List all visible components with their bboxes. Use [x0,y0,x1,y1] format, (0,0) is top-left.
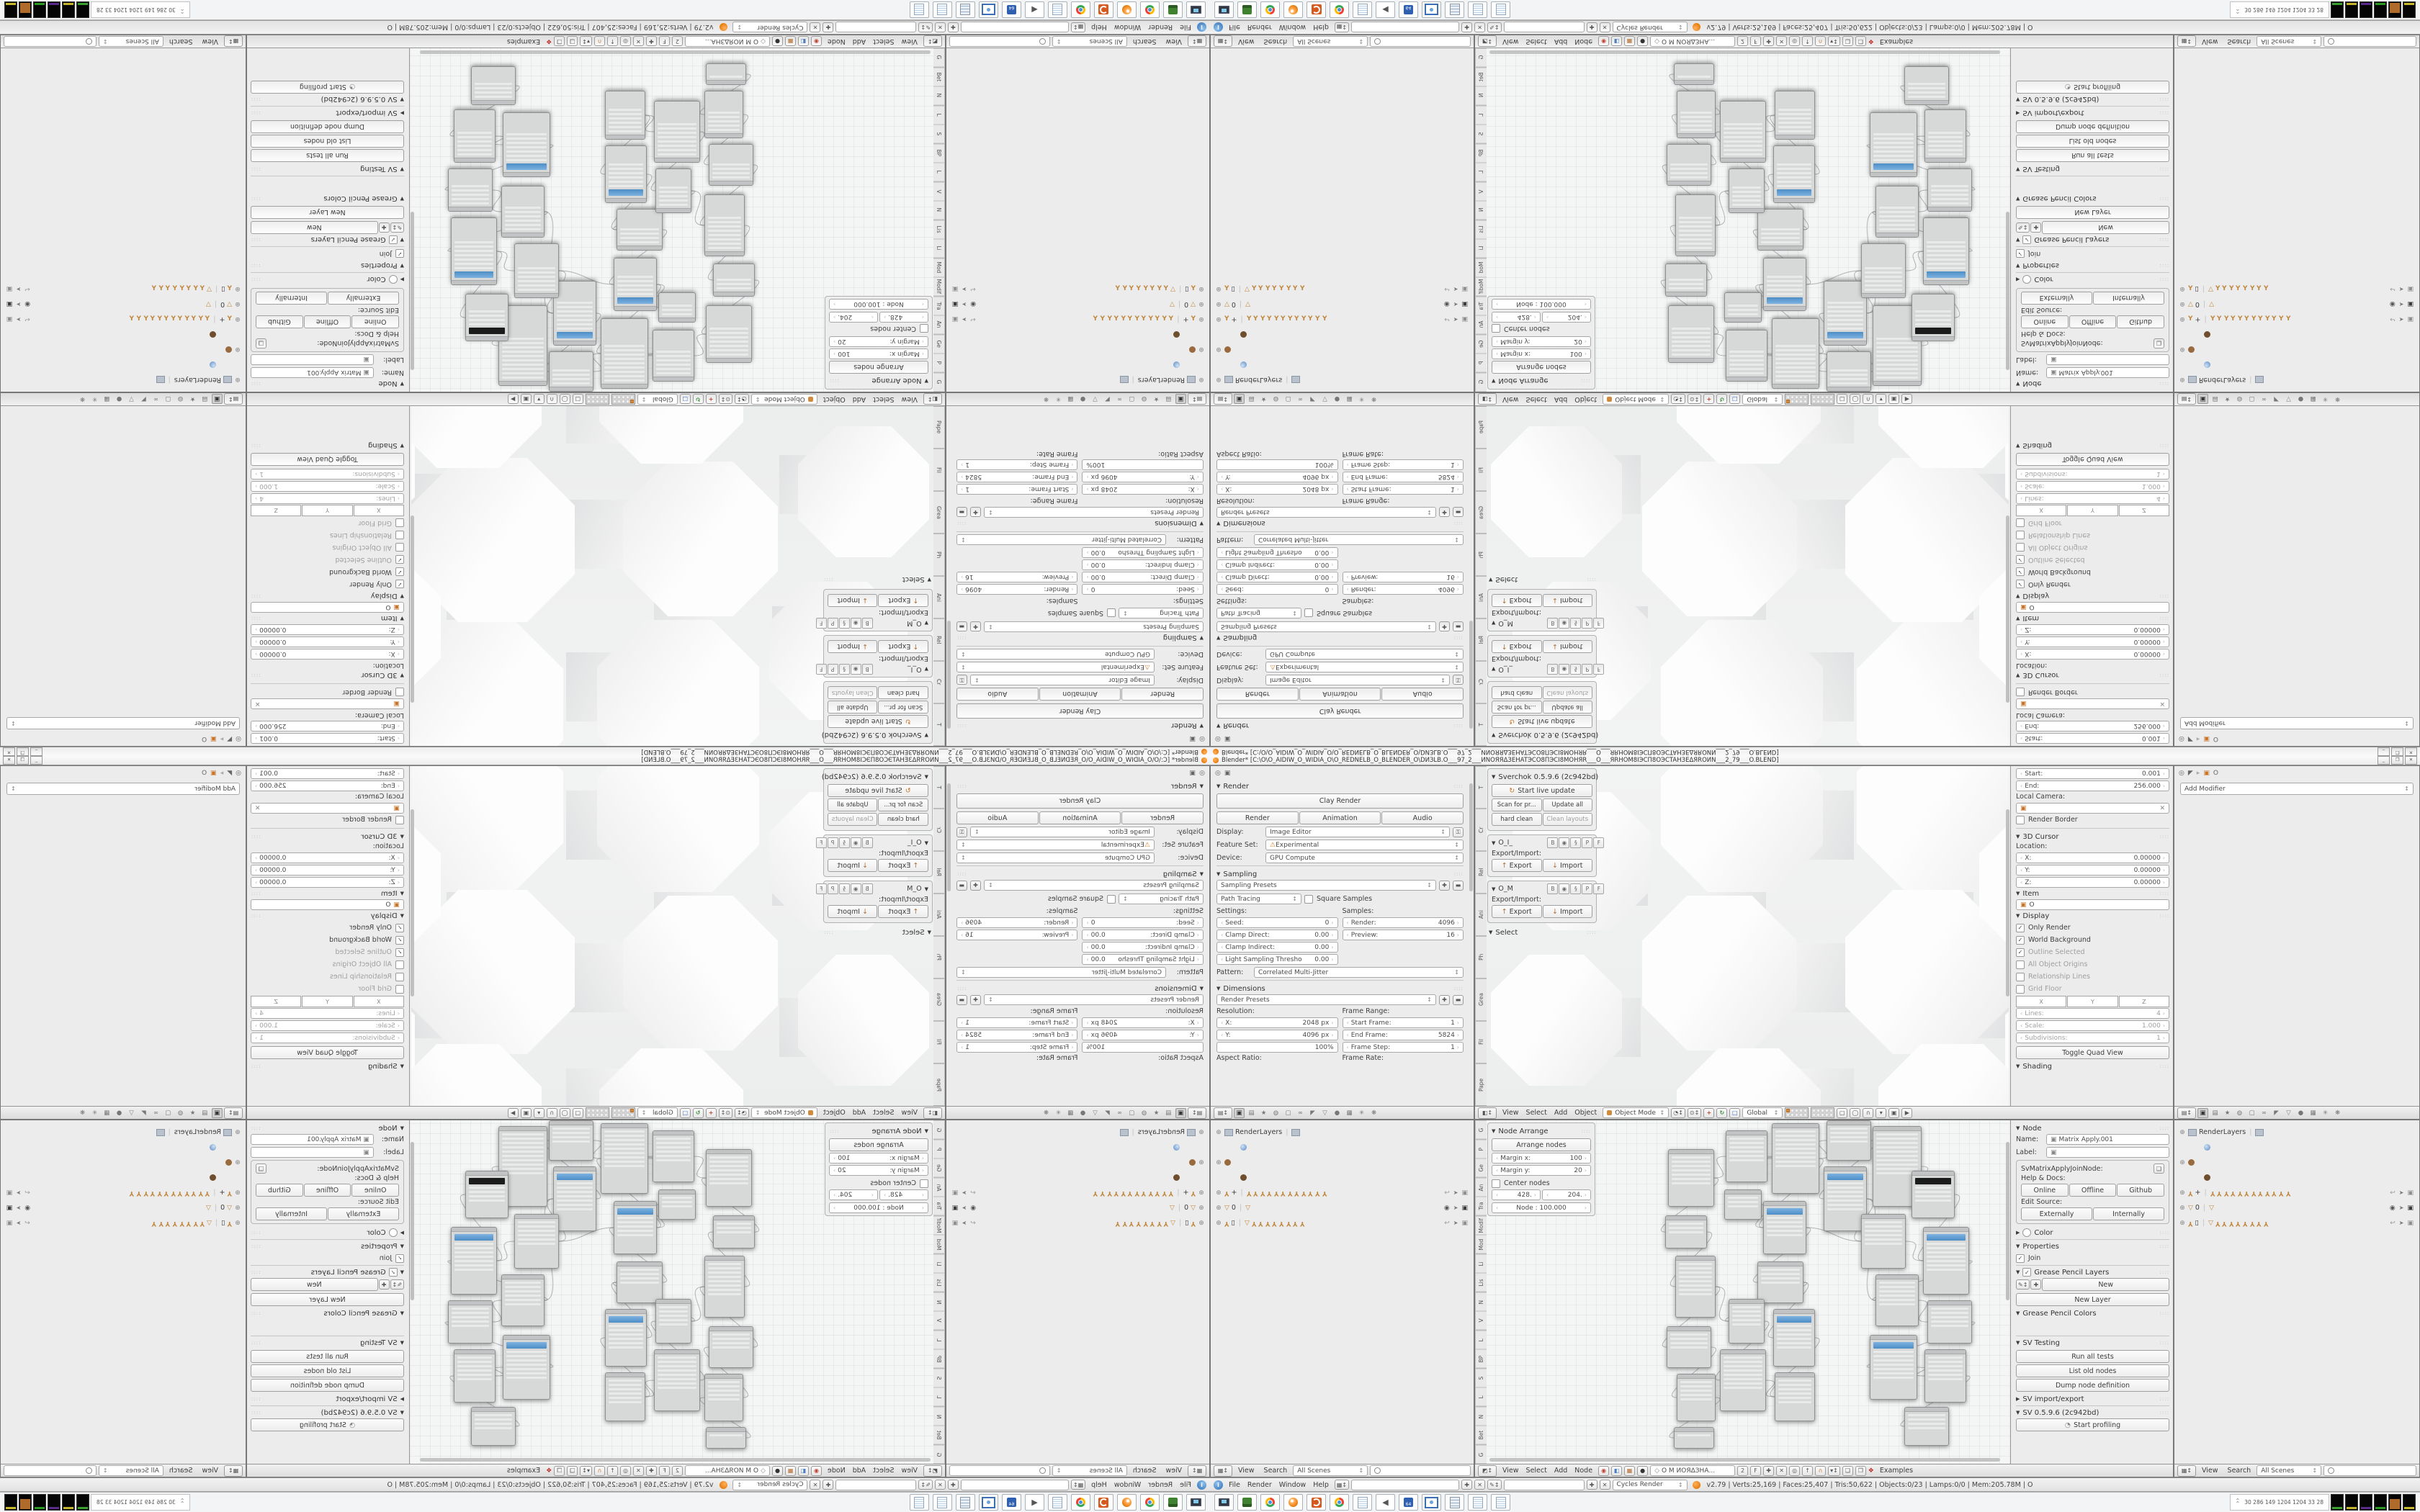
proportional-edit-button[interactable]: ◯ [1850,395,1860,405]
feature-set-select[interactable]: ⚠ Experimental [956,662,1155,672]
graph-node[interactable] [601,1123,648,1194]
seed-field[interactable]: Seed:0 [1083,917,1204,928]
menu-select[interactable]: Select [1523,37,1551,45]
panel-header-sv-testing[interactable]: ▼SV Testing:::: [251,163,404,175]
menu-file[interactable]: File [1176,24,1195,32]
tray-graph-tile[interactable] [2374,1,2387,18]
modifiers-tab[interactable]: ◤ [1307,1108,1318,1118]
parent-tree-icon[interactable]: ↑ [607,1466,618,1476]
armature-box-row[interactable]: ⊕Y▯|▽YYYYYYYY↩➤▣ [2179,282,2416,297]
material-tab[interactable]: ● [1077,395,1088,405]
graph-node[interactable] [658,292,696,323]
info-editor-icon[interactable]: i [1214,1480,1223,1490]
start-frame-field[interactable]: Start Frame:1 [1343,1017,1464,1028]
scene-icon[interactable]: ✎↕ [918,22,932,32]
editor-type-button[interactable]: ◧↕ [1478,1107,1497,1119]
render-samples-field[interactable]: Render:4096 [1343,917,1464,928]
manipulator-rotate-icon[interactable]: ↻ [1716,1108,1727,1118]
armature-plus-row[interactable]: ⊕Y+|YYYYYYYYYYYY↩➤▣ [2179,312,2416,327]
start-live-update-button[interactable]: ↻Start live update [828,715,928,728]
import-button[interactable]: ↓Import [1543,905,1593,918]
node-name-input[interactable]: ▣Matrix Apply.001 [2046,1134,2169,1145]
panel-header-node[interactable]: ▼Node:::: [2016,378,2169,390]
editor-type-button[interactable]: ▤↕ [2177,1107,2196,1119]
image-viewer-icon[interactable] [1422,1,1441,18]
copy-idname-icon[interactable]: ❏ [256,1164,266,1174]
shelf-tab-l[interactable]: L [933,1387,945,1407]
audio-button[interactable]: Audio [956,688,1039,701]
graph-node[interactable] [653,330,694,382]
panel-header-render[interactable]: ▼Render:::: [956,780,1204,792]
delete-screen-button[interactable]: ✕ [1474,1480,1485,1490]
new-tree-button[interactable]: ✚ [1763,1466,1774,1476]
layer-cell[interactable] [1786,395,1790,399]
notepad-icon[interactable] [1048,1494,1067,1511]
cone-zero-row[interactable]: ⊕▽0|▽◉➤▣ [1215,1200,1471,1215]
panel-header-node[interactable]: ▼Node:::: [2016,1122,2169,1134]
armature-box-row[interactable]: ⊕Y▯|▽YYYYYYYY↩➤▣ [1215,282,1471,297]
run-all-tests-button[interactable]: Run all tests [251,149,404,162]
expand-icon[interactable]: ⊕ [1198,286,1205,293]
graph-node[interactable] [1763,1201,1806,1254]
panel-header-sv-version[interactable]: ▼SV 0.5.9.6 (2c942bd):::: [2016,94,2169,105]
layer-cell[interactable] [600,1109,604,1112]
render-border-checkbox[interactable]: Render Border [2016,686,2169,698]
export-button[interactable]: ↑Export [1492,640,1542,653]
layer-cell[interactable] [587,1113,591,1117]
hwinfo64-icon[interactable]: 64 [1002,1494,1021,1511]
object-tab[interactable]: ▢ [2246,395,2257,405]
graph-node[interactable] [503,1335,550,1400]
clip-end-field[interactable]: End:256.000 [251,780,404,791]
graph-node[interactable] [713,264,755,297]
layer-cell[interactable] [1816,400,1820,403]
calculator-icon[interactable] [956,1,975,18]
lock-icon[interactable]: ⚿ [956,827,967,837]
scene-tab[interactable]: ★ [1151,395,1162,405]
menu-node[interactable]: Node [1571,1467,1596,1475]
shelf-tab-ge[interactable]: Ge [1475,335,1487,354]
menu-help[interactable]: Help [1309,24,1332,32]
render-presets-select[interactable]: Render Presets [1216,994,1436,1005]
shader-type-world-icon[interactable]: ◧ [798,37,809,47]
list-old-nodes-button[interactable]: List old nodes [2016,1364,2169,1377]
shelf-tab-ph[interactable]: Ph [1475,936,1487,978]
menu-search[interactable]: Search [2224,1467,2255,1475]
layer-cell[interactable] [626,395,629,399]
blender-icon[interactable] [1283,1494,1303,1511]
checkbox-relationship-lines[interactable]: Relationship Lines [251,529,404,541]
tree-users-button[interactable]: 2 [672,37,683,47]
shelf-tab-an[interactable]: An [933,1178,945,1197]
layer-cell[interactable] [596,1113,599,1117]
integrator-select[interactable]: Path Tracing [1216,608,1301,618]
panel-header-properties[interactable]: ▼Properties:::: [2016,260,2169,271]
internally-button[interactable]: Internally [2093,292,2164,305]
snap-element-button[interactable]: ▾ [534,395,544,405]
editor-type-button[interactable]: ▦↕ [1188,36,1206,48]
object-tab[interactable]: ▢ [1126,395,1137,405]
close-button[interactable]: ✕ [3,747,15,756]
tree-toggle-3[interactable]: P [1582,837,1592,848]
grid-scale-field[interactable]: Scale:1.000 [251,481,404,492]
graph-node[interactable] [1729,1299,1765,1344]
menu-file[interactable]: File [1225,24,1244,32]
physics-tab[interactable]: ❋ [1368,1108,1379,1118]
margin-x-field[interactable]: Margin x:100 [1492,348,1591,359]
shelf-tab-l[interactable]: L [1475,1331,1487,1350]
object-tab[interactable]: ▢ [163,395,174,405]
clay-render-button[interactable]: Clay Render [1216,793,1464,809]
preview-samples-field[interactable]: Preview:16 [1343,930,1464,940]
menu-help[interactable]: Help [1088,24,1111,32]
shelf-tab-ge[interactable]: Ge [1475,1158,1487,1178]
square-samples-checkbox[interactable]: Square Samples [1057,607,1116,619]
close-button[interactable]: ✕ [2405,756,2417,765]
tray-graph-tile[interactable] [2403,1,2416,18]
snap-element-button[interactable]: ▾ [1875,1108,1886,1118]
toggle-quad-view-button[interactable]: Toggle Quad View [251,453,404,466]
object-row[interactable]: ⊕ [2179,1155,2416,1170]
texture-type-icon[interactable]: ▦ [785,37,796,47]
shelf-tab-cr[interactable]: Cr [1475,661,1487,703]
github-button[interactable]: Github [2117,1184,2164,1197]
render-engine-select[interactable]: Cycles Render [732,22,807,33]
checkbox-grid-floor[interactable]: Grid Floor [2016,517,2169,529]
graph-node[interactable] [1667,1326,1711,1368]
shelf-tab-lis[interactable]: Lis [1475,220,1487,240]
layer-cell[interactable] [1812,395,1816,399]
clean-layouts-button[interactable]: Clean layouts [828,686,878,699]
screenshot-app-icon[interactable] [1214,1,1234,18]
manipulator-rotate-icon[interactable]: ↻ [693,395,704,405]
grid-axis-y[interactable]: Y [302,505,352,516]
texture-tab[interactable]: ▦ [2308,1108,2318,1118]
panel-header-sampling[interactable]: ▼Sampling:::: [1216,632,1464,644]
graph-node[interactable] [704,1374,743,1421]
graph-node[interactable] [655,168,691,213]
shelf-tab-t[interactable]: T [933,703,945,746]
lock-to-scene-icon[interactable]: ▢ [573,1108,583,1118]
remove-preset-button[interactable]: ▬ [1453,622,1464,632]
expand-icon[interactable]: ⊕ [1215,1205,1222,1212]
graph-node[interactable] [1724,1189,1762,1220]
layer-cell[interactable] [1795,1109,1798,1112]
new-layer-button[interactable]: New Layer [2016,1293,2169,1306]
layer-cell[interactable] [591,395,595,399]
paste-nodes-icon[interactable]: ❐ [554,1466,565,1476]
clip-end-field[interactable]: End:256.000 [251,721,404,732]
pattern-select[interactable]: Correlated Multi-Jitter [956,967,1166,978]
spiral-app-icon[interactable] [1094,1494,1113,1511]
local-camera-field[interactable]: ▣✕ [251,803,404,814]
layer-cell[interactable] [1821,400,1824,403]
mode-select[interactable]: Object Mode [1603,394,1669,405]
resolution-x-field[interactable]: X:2048 px [1216,1017,1338,1028]
outliner-search-input[interactable] [4,1465,97,1476]
outliner-search-input[interactable] [1370,36,1471,47]
graph-node[interactable] [465,294,508,341]
tree-users-button[interactable]: 2 [1737,37,1748,47]
internally-button[interactable]: Internally [256,292,327,305]
info-editor-icon[interactable]: i [1197,23,1206,32]
shelf-tab-grea[interactable]: Grea [933,978,945,1021]
tray-graph-tile[interactable] [4,1,17,18]
clamp-direct-field[interactable]: Clamp Direct:0.00 [1083,572,1204,582]
checkbox-only-render[interactable]: ✓Only Render [251,578,404,590]
graph-node[interactable] [1827,1120,1871,1161]
unlink-tree-button[interactable]: ✕ [1776,1466,1787,1476]
manipulator-scale-icon[interactable]: □ [680,1108,691,1118]
graph-node[interactable] [454,109,496,163]
world-tab[interactable]: ◍ [1139,1108,1149,1118]
cursor-x-field[interactable]: X:0.00000 [251,649,404,660]
spiral-app-icon[interactable] [1094,1,1113,18]
lock-icon[interactable]: ⚿ [1453,827,1464,837]
sampling-presets-select[interactable]: Sampling Presets [1216,621,1436,632]
grid-axis-y[interactable]: Y [2067,505,2117,516]
audio-button[interactable]: Audio [956,811,1039,824]
menu-select[interactable]: Select [869,1109,897,1117]
shader-type-world-icon[interactable]: ◧ [798,1466,809,1476]
menu-examples[interactable]: Examples [503,37,544,45]
externally-button[interactable]: Externally [328,292,399,305]
tree-toggle-2[interactable]: § [1570,837,1581,848]
lock-to-scene-icon[interactable]: ▢ [1837,1108,1847,1118]
new-layer-button[interactable]: New Layer [2016,206,2169,219]
tree-toggle-3[interactable]: P [828,664,838,675]
panel-header-shading[interactable]: ▼Shading:::: [251,1061,404,1072]
manipulator-rotate-icon[interactable]: ↻ [1716,395,1727,405]
panel-header-3d-cursor[interactable]: ▼3D Cursor:::: [2016,670,2169,681]
cone-zero-row[interactable]: ⊕▽0|▽◉➤▣ [1215,297,1471,312]
outliner-search-input[interactable] [949,36,1050,47]
layer-cell[interactable] [591,1113,595,1117]
add-preset-button[interactable]: ✚ [970,508,981,518]
fake-user-button[interactable]: F [659,37,670,47]
graph-node[interactable] [706,1427,746,1449]
layer-grid-2[interactable] [1811,394,1834,405]
layer-cell[interactable] [1825,395,1829,399]
layer-cell[interactable] [1803,1113,1807,1117]
cone-zero-row[interactable]: ⊕▽0|▽◉➤▣ [4,1200,241,1215]
local-camera-field[interactable]: ▣✕ [2016,803,2169,814]
snap-magnet-button[interactable]: ∩ [1863,1108,1873,1118]
render-tab[interactable]: ▣ [1175,395,1186,405]
panel-header-shading[interactable]: ▼Shading:::: [251,440,404,451]
speaker-icon[interactable]: ◀ [1025,1,1044,18]
shelf-tab-s[interactable]: S [933,1369,945,1388]
viewport-shading-button[interactable]: ◔↕ [1671,395,1685,405]
menu-object[interactable]: Object [1571,1109,1600,1117]
data-tab[interactable]: ▽ [126,395,137,405]
light-sampling-threshold-field[interactable]: Light Sampling Thresho0.00 [1083,954,1204,965]
start-frame-field[interactable]: Start Frame:1 [1343,484,1464,495]
shader-type-object-icon[interactable]: ◉ [1598,37,1609,47]
grid-lines-field[interactable]: Lines:4 [251,493,404,504]
node-label-input[interactable]: ▣ [2046,1147,2169,1158]
shelf-tab-tra[interactable]: Tra [933,1197,945,1216]
layer-cell[interactable] [617,1109,621,1112]
viewport-3d[interactable]: TCrRelAniPhGreaFilPape ▼Sverchok 0.5.9.6… [1474,392,2174,747]
graph-node[interactable] [454,1349,496,1403]
panel-header-sv-import-export[interactable]: ▶SV import/export:::: [251,107,404,119]
shelf-tab-l[interactable]: L [1475,163,1487,182]
tray-graph-tile[interactable] [2374,1494,2387,1511]
shelf-tab-cr[interactable]: Cr [933,809,945,851]
graph-node[interactable] [451,217,497,285]
render-samples-field[interactable]: Render:4096 [956,917,1078,928]
tree-toggle-1[interactable]: ◉ [1559,664,1569,675]
clean-layouts-button[interactable]: Clean layouts [828,813,878,826]
shelf-tab-bet[interactable]: Bet [933,1426,945,1445]
layer-cell[interactable] [630,1113,634,1117]
grid-lines-field[interactable]: Lines:4 [251,1008,404,1019]
update-all-button[interactable]: Update all [1543,701,1593,714]
shelf-tab-grea[interactable]: Grea [1475,491,1487,534]
editor-type-button[interactable]: ◧↕ [1478,394,1497,405]
panel-header-gp-layers[interactable]: ▼✓Grease Pencil Layers:::: [2016,234,2169,246]
panel-header-dimensions[interactable]: ▼Dimensions:::: [1216,983,1464,994]
data-tab[interactable]: ▽ [1319,1108,1330,1118]
toggle-quad-view-button[interactable]: Toggle Quad View [2016,453,2169,466]
sensor-readout[interactable]: ⌃⌃30 286 149 1204 1204 33 28 [2230,1,2329,18]
panel-header-3d-cursor[interactable]: ▼3D Cursor:::: [2016,831,2169,842]
render-layers-tab[interactable]: ▤ [200,395,210,405]
shelf-tab-li[interactable]: Li [1475,1254,1487,1274]
material-tab[interactable]: ● [114,1108,125,1118]
snap-element-button[interactable]: ▾↕ [580,1466,592,1476]
shelf-tab-s[interactable]: S [1475,125,1487,144]
shelf-tab-lis[interactable]: Lis [1475,1273,1487,1292]
viewport-3d[interactable]: TCrRelAniPhGreaFilPape ▼Sverchok 0.5.9.6… [1474,765,2174,1120]
graph-node[interactable] [704,1256,745,1318]
snap-element-button[interactable]: ▾↕ [580,37,592,47]
screenshot-app-icon[interactable] [1186,1,1206,18]
cursor-y-field[interactable]: Y:0.00000 [2016,865,2169,876]
layer-cell[interactable] [1816,1109,1820,1112]
expand-icon[interactable]: ⊕ [234,286,241,293]
modifiers-tab[interactable]: ◤ [138,395,149,405]
outliner-filter-select[interactable]: All Scenes [2257,1465,2321,1476]
shelf-tab-mod[interactable]: Mod [933,1235,945,1254]
mode-select[interactable]: Object Mode [751,1107,817,1118]
layer-cell[interactable] [1803,400,1807,403]
info-editor-icon[interactable]: i [1214,23,1223,32]
shelf-tab-bp[interactable]: BP [933,1349,945,1369]
clay-render-button[interactable]: Clay Render [956,793,1204,809]
snap-element-button[interactable]: ▾ [1875,395,1886,405]
manipulator-translate-icon[interactable]: + [706,395,717,405]
export-button[interactable]: ↑Export [879,640,929,653]
graph-node[interactable] [1729,168,1765,213]
sdcard-app-icon[interactable] [1163,1,1183,18]
texture-tab[interactable]: ▦ [1344,1108,1355,1118]
graph-node[interactable] [448,168,493,212]
sensor-readout[interactable]: ⌃⌃30 286 149 1204 1204 33 28 [91,1,190,18]
shelf-tab-l[interactable]: L [1475,106,1487,125]
import-button[interactable]: ↓Import [1543,594,1593,607]
layer-cell[interactable] [604,1109,608,1112]
menu-view[interactable]: View [897,1467,921,1475]
panel-header-display[interactable]: ▼Display:::: [251,910,404,922]
shader-type-object-icon[interactable]: ◉ [811,37,822,47]
scan-for-props-button[interactable]: Scan for pr... [879,798,929,811]
end-frame-field[interactable]: End Frame:5824 [956,472,1078,482]
expand-icon[interactable]: ⊕ [234,301,241,308]
tree-toggle-4[interactable]: F [1593,664,1604,675]
menu-node[interactable]: Node [824,37,849,45]
notepad-icon-2[interactable] [933,1494,952,1511]
clip-start-field[interactable]: Start:0.001 [251,733,404,744]
paste-nodes-icon[interactable]: ❐ [554,37,565,47]
run-all-tests-button[interactable]: Run all tests [2016,1350,2169,1363]
shelf-tab-g[interactable]: G [1475,373,1487,392]
scene-name-field[interactable] [835,1480,916,1490]
expand-icon[interactable]: ⊕ [1198,1220,1205,1227]
graph-node[interactable] [1668,305,1714,363]
github-button[interactable]: Github [2117,315,2164,328]
seed-field[interactable]: Seed:0 [1216,917,1338,928]
notepad-icon-3[interactable] [1491,1494,1510,1511]
layer-cell[interactable] [1829,395,1833,399]
copy-nodes-icon[interactable]: ❏ [567,1466,578,1476]
remove-preset-button[interactable]: ▬ [1453,995,1464,1005]
layer-cell[interactable] [617,1113,621,1117]
list-old-nodes-button[interactable]: List old nodes [2016,135,2169,148]
clamp-direct-field[interactable]: Clamp Direct:0.00 [1083,930,1204,940]
viewport-shading-button[interactable]: ◔↕ [735,1108,749,1118]
node-scale-field[interactable]: Node : 100.000 [1492,299,1591,310]
panel-header-sampling[interactable]: ▼Sampling:::: [956,868,1204,880]
editor-type-button[interactable]: ◩↕ [1478,36,1497,48]
arrange-field-a[interactable]: 428. [879,1189,928,1200]
layer-grid-2[interactable] [1811,1107,1834,1118]
tree-toggle-2[interactable]: § [839,883,850,894]
expand-icon[interactable]: ⊕ [1198,1205,1205,1212]
shelf-tab-bet[interactable]: Bet [933,68,945,87]
shader-type-object-icon[interactable]: ◉ [811,1466,822,1476]
panel-header-3d-cursor[interactable]: ▼3D Cursor:::: [251,831,404,842]
menu-render[interactable]: Render [1144,24,1176,32]
menu-view[interactable]: View [198,1467,222,1475]
restore-button[interactable]: ❐ [2391,756,2403,765]
tree-toggle-3[interactable]: P [828,618,838,629]
object-data-row[interactable] [949,327,1205,342]
render-tab[interactable]: ▣ [212,395,223,405]
remove-preset-button[interactable]: ▬ [956,508,967,518]
import-button[interactable]: ↓Import [1543,640,1593,653]
margin-x-field[interactable]: Margin x:100 [829,348,928,359]
graph-node[interactable] [1927,168,1972,212]
graph-node[interactable] [605,1372,645,1421]
panel-header-node-arrange[interactable]: ▼Node Arrange:::: [829,375,928,387]
panel-header-shading[interactable]: ▼Shading:::: [2016,440,2169,451]
panel-header-sampling[interactable]: ▼Sampling:::: [1216,868,1464,880]
layer-cell[interactable] [622,400,625,403]
layer-cell[interactable] [1799,1109,1803,1112]
physics-tab[interactable]: ❋ [2332,1108,2343,1118]
layer-cell[interactable] [596,395,599,399]
render-layers-tab[interactable]: ▤ [2210,1108,2220,1118]
world-tab[interactable]: ◍ [1270,1108,1281,1118]
layer-cell[interactable] [1812,1109,1816,1112]
calculator-icon[interactable] [1445,1,1464,18]
layer-cell[interactable] [1812,1113,1816,1117]
panel-header-sampling[interactable]: ▼Sampling:::: [956,632,1204,644]
shelf-tab-g[interactable]: G [933,1120,945,1140]
integrator-select[interactable]: Path Tracing [1216,894,1301,904]
